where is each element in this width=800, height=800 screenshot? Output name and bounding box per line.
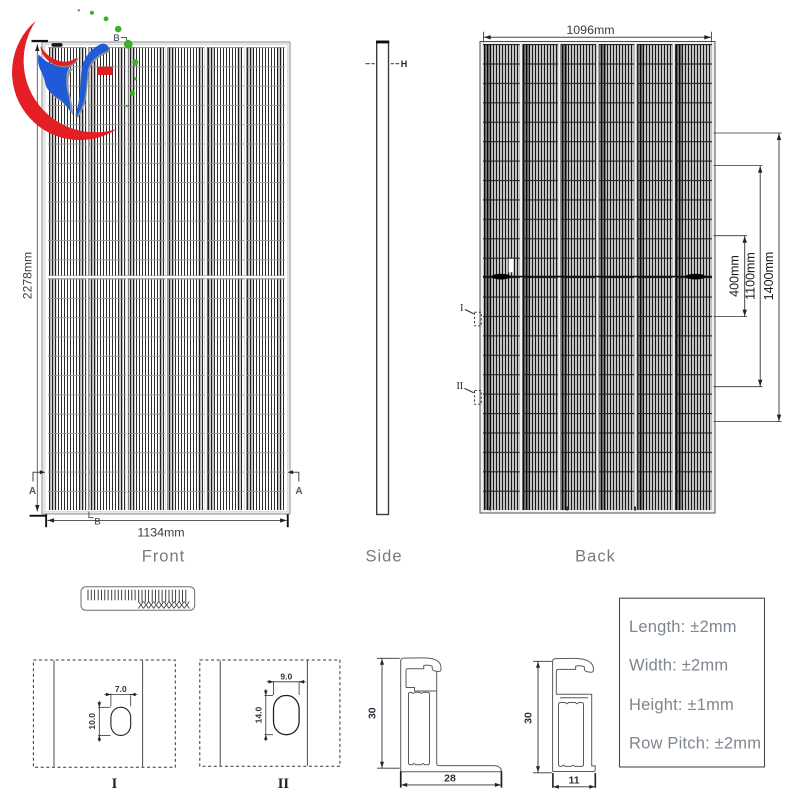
svg-text:I: I	[460, 303, 463, 314]
svg-text:400mm: 400mm	[728, 255, 742, 297]
svg-text:Back: Back	[575, 548, 616, 566]
svg-text:Height: ±1mm: Height: ±1mm	[629, 696, 734, 714]
svg-text:11: 11	[568, 775, 579, 787]
svg-text:Length: ±2mm: Length: ±2mm	[629, 618, 737, 636]
svg-text:7.0: 7.0	[115, 684, 127, 694]
svg-text:28: 28	[444, 773, 456, 785]
svg-text:A: A	[29, 486, 36, 497]
svg-text:A: A	[295, 486, 302, 497]
svg-text:II: II	[456, 381, 463, 392]
svg-text:9.0: 9.0	[280, 671, 292, 681]
svg-text:30: 30	[367, 707, 379, 719]
svg-text:XXXXXXXXXX: XXXXXXXXXX	[138, 601, 191, 612]
svg-text:Front: Front	[142, 548, 186, 566]
svg-text:Row Pitch: ±2mm: Row Pitch: ±2mm	[629, 735, 761, 753]
svg-text:I: I	[112, 776, 118, 792]
svg-text:30: 30	[523, 712, 535, 724]
svg-text:1134mm: 1134mm	[137, 526, 184, 540]
svg-text:2278mm: 2278mm	[21, 252, 35, 299]
svg-text:II: II	[278, 776, 290, 792]
svg-text:14.0: 14.0	[254, 707, 264, 724]
svg-text:1096mm: 1096mm	[566, 23, 614, 37]
svg-text:Width: ±2mm: Width: ±2mm	[629, 657, 728, 675]
svg-text:B: B	[113, 33, 119, 44]
svg-text:1100mm: 1100mm	[743, 252, 757, 300]
svg-text:10.0: 10.0	[87, 713, 97, 730]
svg-text:H: H	[401, 59, 408, 69]
svg-text:B: B	[94, 517, 100, 528]
svg-text:Side: Side	[365, 548, 402, 566]
svg-text:1400mm: 1400mm	[762, 252, 776, 301]
